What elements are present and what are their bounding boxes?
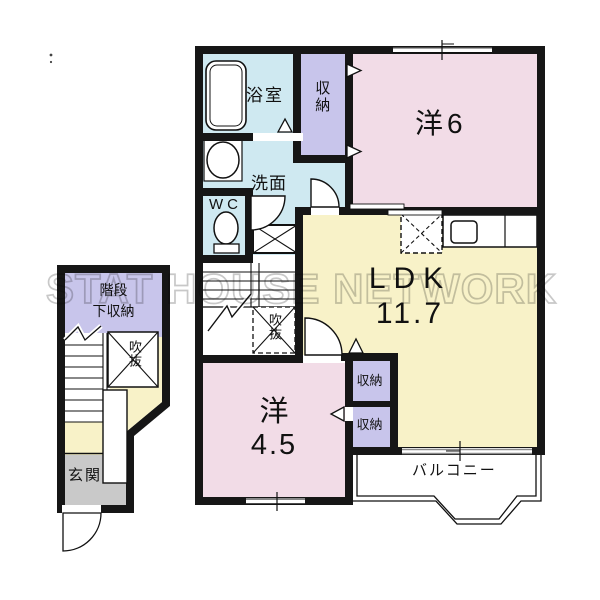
stray-mark	[50, 54, 53, 64]
label-ldk-size: 11.7	[345, 297, 475, 332]
label-under-stair-storage-line2: 下収納	[65, 301, 162, 322]
label-balcony: バルコニー	[412, 462, 497, 479]
floor-plan: 浴室 収納 洋6 洗面 WC 吹抜 LDK 11.7 収納 収納 洋 4.5 バ…	[0, 0, 600, 600]
label-bedroom45-size: 4.5	[203, 429, 345, 462]
label-under-stair-storage-line1: 階段	[65, 280, 162, 301]
label-ldk-name: LDK	[345, 262, 475, 297]
washroom-door-opening	[311, 207, 339, 215]
label-entrance: 玄関	[68, 467, 102, 484]
kitchen-counter	[443, 215, 537, 247]
label-bathroom: 浴室	[246, 86, 284, 106]
label-wc: WC	[209, 196, 242, 213]
label-under-stair-storage: 階段 下収納	[65, 280, 162, 322]
refrigerator-space	[401, 214, 442, 253]
entrance-door-arc	[63, 513, 101, 551]
toilet	[214, 212, 239, 253]
label-void-2f: 吹抜	[266, 313, 281, 355]
label-bedroom45-name: 洋	[203, 396, 345, 429]
entrance-door-opening	[62, 505, 101, 513]
kitchen-sink	[451, 221, 477, 243]
label-washroom: 洗面	[251, 174, 287, 194]
label-closet-b: 収納	[349, 418, 390, 433]
label-bedroom45: 洋 4.5	[203, 396, 345, 463]
washbasin	[204, 140, 242, 181]
bathtub	[206, 61, 246, 130]
label-bedroom6: 洋6	[415, 108, 467, 140]
bathroom-door-opening	[253, 133, 303, 141]
label-ldk: LDK 11.7	[345, 262, 475, 331]
shoe-cabinet	[103, 390, 127, 483]
label-void-1f: 吹抜	[126, 340, 141, 382]
label-closet-a: 収納	[349, 374, 390, 389]
label-closet-top: 収納	[313, 80, 330, 150]
